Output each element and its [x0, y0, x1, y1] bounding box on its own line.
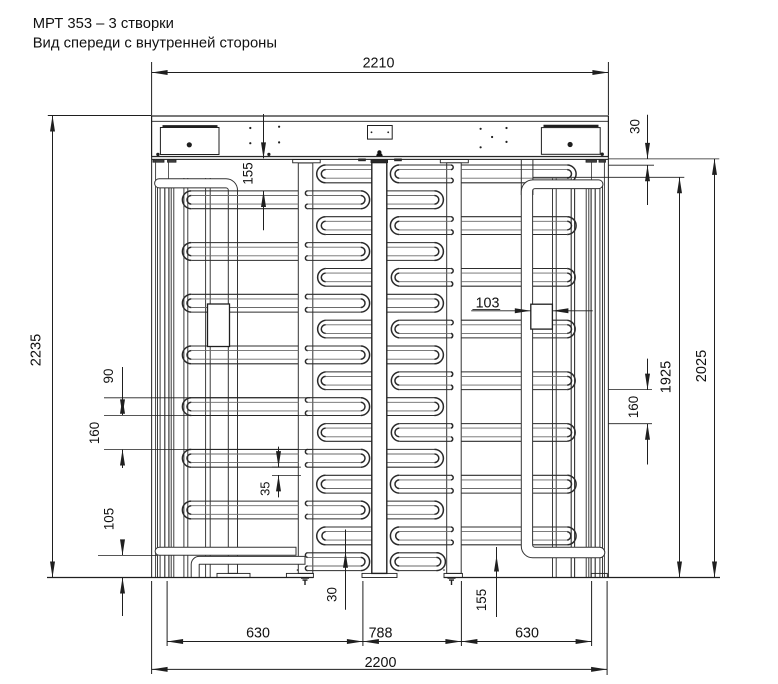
svg-text:30: 30 [628, 119, 643, 134]
svg-text:160: 160 [626, 396, 641, 418]
svg-text:Вид спереди с внутренней сторо: Вид спереди с внутренней стороны [33, 36, 277, 52]
svg-text:155: 155 [474, 589, 489, 611]
svg-text:2210: 2210 [363, 55, 395, 71]
svg-text:35: 35 [258, 481, 273, 495]
svg-text:30: 30 [325, 587, 340, 602]
svg-text:105: 105 [102, 508, 117, 530]
svg-text:160: 160 [87, 422, 102, 444]
svg-text:630: 630 [246, 625, 270, 641]
svg-text:2200: 2200 [365, 655, 397, 671]
svg-text:2025: 2025 [694, 350, 710, 382]
svg-text:90: 90 [101, 369, 116, 384]
svg-text:2235: 2235 [29, 334, 45, 366]
svg-text:155: 155 [241, 162, 256, 184]
svg-text:1925: 1925 [659, 361, 675, 393]
svg-text:103: 103 [476, 296, 500, 312]
svg-text:788: 788 [369, 625, 393, 641]
svg-text:630: 630 [515, 625, 539, 641]
svg-text:МРТ 353 – 3 створки: МРТ 353 – 3 створки [33, 16, 174, 32]
